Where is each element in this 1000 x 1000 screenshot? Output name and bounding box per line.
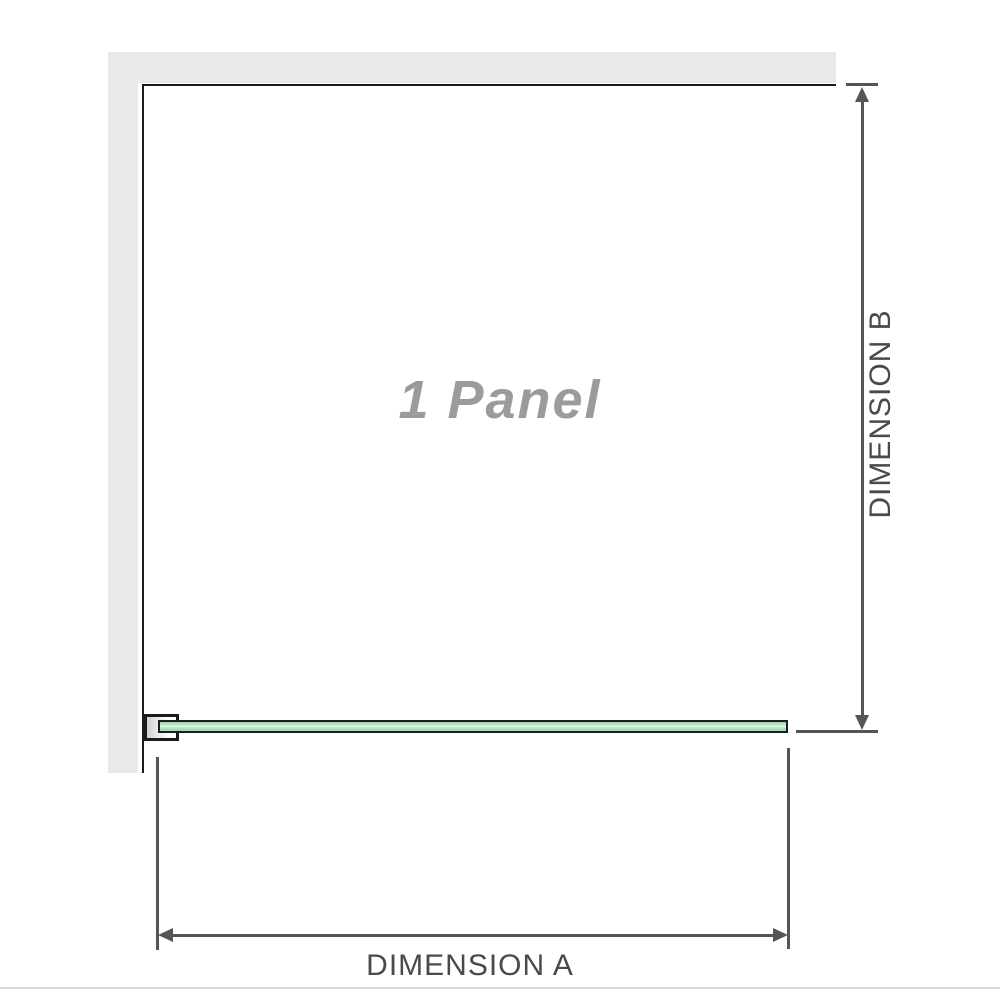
bottom-separator [0,987,1000,989]
glass-panel [158,720,788,733]
dimension-a-arrow-right-icon [773,928,788,942]
enclosure-left-edge [142,84,144,773]
dimension-b-arrow-up-icon [855,87,869,102]
dimension-b-arrow-down-icon [855,715,869,730]
dimension-a-left-tick [156,757,159,950]
dimension-b-top-tick [846,83,878,86]
dimension-b-label: DIMENSION B [864,309,898,518]
wall-left-bar [108,52,138,773]
dimension-a-label: DIMENSION A [366,949,574,983]
dimension-a-line [170,934,776,937]
dimension-a-arrow-left-icon [158,928,173,942]
dimension-b-bottom-tick [796,730,878,733]
wall-top-bar [108,52,836,83]
diagram-canvas: 1 Panel DIMENSION B DIMENSION A [0,0,1000,1000]
panel-count-label: 1 Panel [398,369,601,431]
dimension-a-right-tick [787,748,790,949]
enclosure-top-edge [142,84,836,86]
